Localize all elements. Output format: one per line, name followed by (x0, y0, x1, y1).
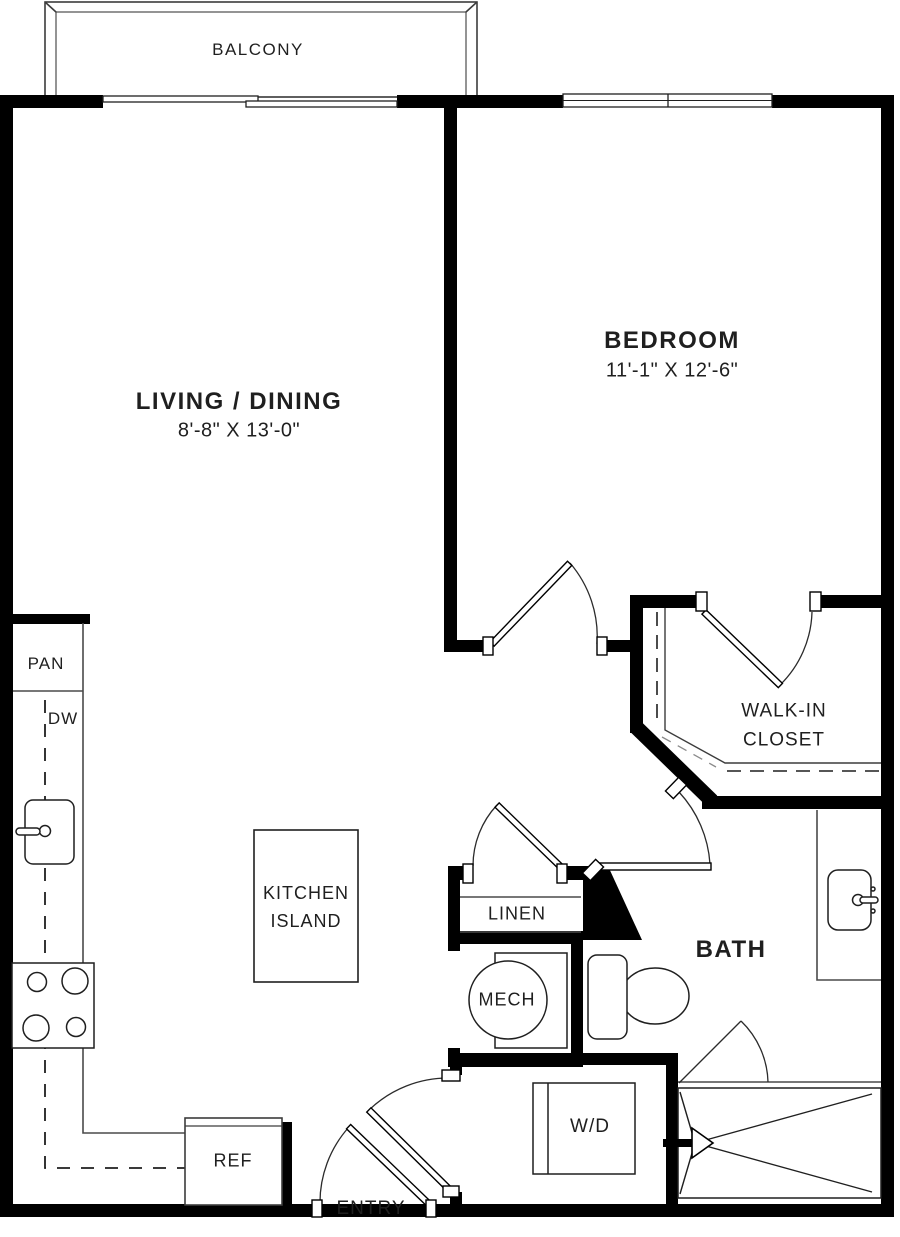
kitchen-upper-cabinet-dashed (45, 700, 185, 1168)
bath-label: BATH (696, 936, 767, 964)
entry-door-arc (320, 1127, 349, 1205)
walk-in-closet-label: WALK-IN CLOSET (741, 697, 826, 756)
wd-door-arc (369, 1078, 450, 1110)
tub-door-arc (741, 1021, 768, 1082)
floorplan-drawing (0, 0, 900, 1237)
walk-in-closet-line1: WALK-IN (741, 697, 826, 726)
kitchen-island-label: KITCHEN ISLAND (263, 880, 349, 936)
bath-door-leaf (597, 863, 711, 870)
bedroom-door-leaf (490, 561, 572, 646)
dishwasher-label: DW (48, 709, 78, 729)
living-dining-dims: 8'-8" X 13'-0" (178, 420, 300, 443)
tub-door-leaf (679, 1021, 741, 1083)
linen-door-arc (473, 805, 497, 866)
kitchen-island-line1: KITCHEN (263, 880, 349, 908)
bedroom-door-arc (570, 563, 597, 644)
bath-sink (828, 870, 878, 930)
toilet (588, 955, 689, 1039)
entry-label: ENTRY (336, 1198, 405, 1220)
bathtub (663, 1088, 881, 1198)
kitchen-counter-lines (13, 623, 185, 1133)
bedroom-dims: 11'-1" X 12'-6" (606, 360, 738, 383)
wd-door-leaf (367, 1108, 452, 1192)
tub-faucet-icon (663, 1139, 692, 1147)
refrigerator-label: REF (214, 1151, 253, 1172)
closet-door-arc (780, 612, 812, 685)
washer-dryer-label: W/D (570, 1116, 610, 1138)
living-dining-label: LIVING / DINING (136, 388, 343, 416)
floorplan: BALCONY LIVING / DINING 8'-8" X 13'-0" B… (0, 0, 900, 1237)
closet-door-leaf (702, 610, 783, 688)
kitchen-island-line2: ISLAND (263, 908, 349, 936)
linen-label: LINEN (488, 904, 546, 925)
pantry-label: PAN (28, 654, 65, 674)
entry-door-leaf (346, 1124, 432, 1207)
bedroom-label: BEDROOM (604, 327, 740, 355)
mech-label: MECH (479, 990, 536, 1011)
walk-in-closet-line2: CLOSET (741, 726, 826, 755)
balcony-label: BALCONY (212, 40, 304, 60)
stove (12, 963, 94, 1048)
linen-door-leaf (495, 803, 563, 869)
bedroom-window (563, 94, 772, 107)
kitchen-sink (16, 800, 74, 864)
